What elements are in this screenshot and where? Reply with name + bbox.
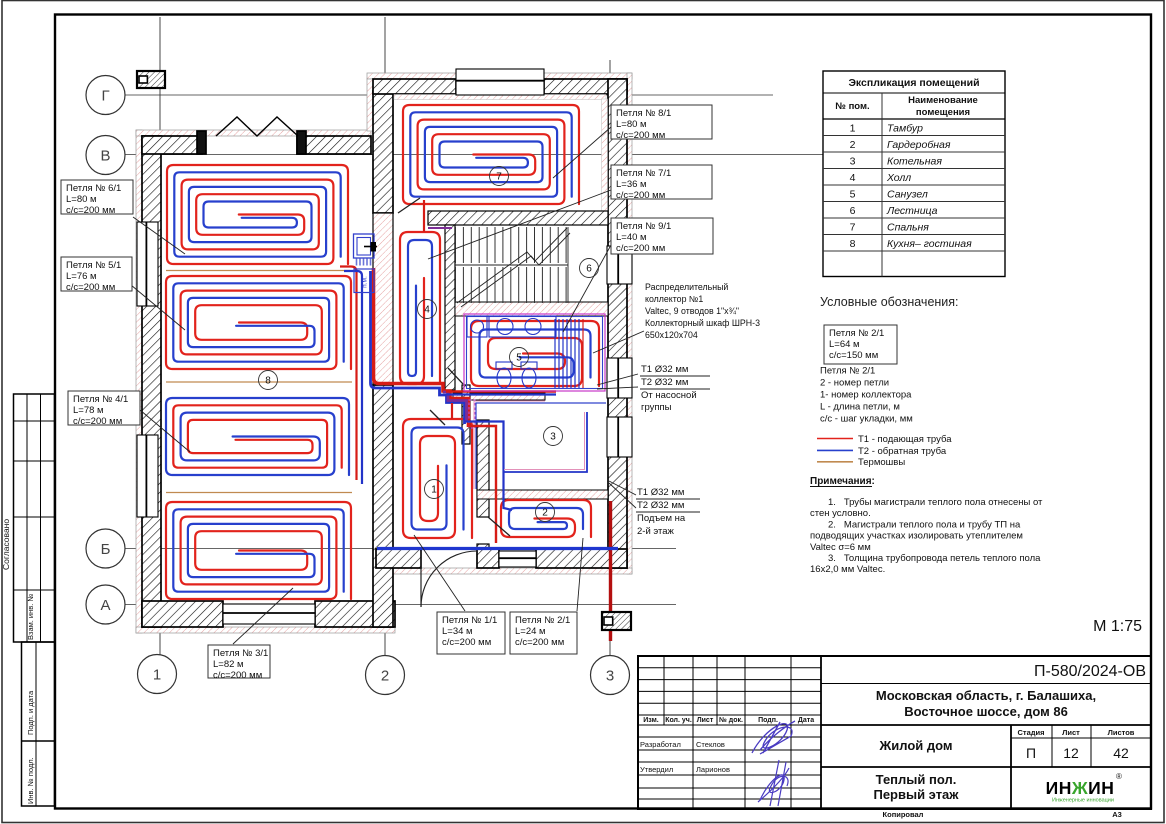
svg-text:с/с=200 мм: с/с=200 мм xyxy=(616,190,665,201)
svg-text:Восточное шоссе, дом 86: Восточное шоссе, дом 86 xyxy=(904,704,1068,719)
svg-text:2 - номер петли: 2 - номер петли xyxy=(820,378,889,389)
svg-text:с/с=200 мм: с/с=200 мм xyxy=(73,416,122,427)
svg-text:L=80 м: L=80 м xyxy=(66,194,97,205)
svg-text:Т1 Ø32 мм: Т1 Ø32 мм xyxy=(637,487,684,498)
svg-text:5: 5 xyxy=(850,189,856,201)
svg-text:Котельная: Котельная xyxy=(887,156,942,168)
svg-text:П-580/2024-ОВ: П-580/2024-ОВ xyxy=(1034,663,1146,680)
svg-text:с/с - шаг укладки, мм: с/с - шаг укладки, мм xyxy=(820,414,913,425)
svg-text:3: 3 xyxy=(606,667,614,684)
svg-text:Инженерные инновации: Инженерные инновации xyxy=(1052,798,1114,804)
svg-text:№ док.: № док. xyxy=(719,716,743,724)
svg-text:помещения: помещения xyxy=(916,107,970,118)
svg-text:Санузел: Санузел xyxy=(887,189,928,201)
svg-text:L=76 м: L=76 м xyxy=(66,271,97,282)
svg-text:с/с=200 мм: с/с=200 мм xyxy=(515,637,564,648)
svg-text:с/с=200 мм: с/с=200 мм xyxy=(213,670,262,681)
svg-text:группы: группы xyxy=(641,402,672,413)
svg-text:Петля № 9/1: Петля № 9/1 xyxy=(616,221,671,232)
svg-text:подводящих участках изолироват: подводящих участках изолировать утеплите… xyxy=(810,531,1023,542)
svg-text:Взам. инв. №: Взам. инв. № xyxy=(26,594,35,640)
svg-text:с/с=200 мм: с/с=200 мм xyxy=(442,637,491,648)
svg-text:1. Трубы магистрали теплого: 1. Трубы магистрали теплого пола отнесен… xyxy=(828,497,1043,508)
svg-text:Экспликация помещений: Экспликация помещений xyxy=(848,77,979,89)
svg-text:3. Толщина трубопровода пете: 3. Толщина трубопровода петель теплого п… xyxy=(828,553,1041,564)
svg-text:с/с=150 мм: с/с=150 мм xyxy=(829,350,878,361)
svg-text:Спальня: Спальня xyxy=(887,222,929,234)
svg-text:Петля № 2/1: Петля № 2/1 xyxy=(829,328,884,339)
svg-text:Т1 - подающая труба: Т1 - подающая труба xyxy=(858,434,952,445)
svg-text:Кол. уч.: Кол. уч. xyxy=(665,717,692,724)
svg-text:Листов: Листов xyxy=(1108,728,1135,737)
svg-text:Ларионов: Ларионов xyxy=(696,765,730,774)
svg-text:В: В xyxy=(100,147,110,164)
svg-text:Подъем на: Подъем на xyxy=(637,513,686,524)
svg-text:Теплый пол.: Теплый пол. xyxy=(876,772,957,787)
svg-text:От насосной: От насосной xyxy=(641,390,697,401)
svg-text:Термошвы: Термошвы xyxy=(858,457,905,468)
svg-text:Распределительный: Распределительный xyxy=(645,282,728,292)
svg-text:Кухня– гостиная: Кухня– гостиная xyxy=(887,238,972,250)
svg-text:1: 1 xyxy=(431,485,437,496)
svg-text:Подп. и дата: Подп. и дата xyxy=(26,690,35,735)
svg-text:Петля № 8/1: Петля № 8/1 xyxy=(616,108,671,119)
svg-text:Московская область, г. Балаших: Московская область, г. Балашиха, xyxy=(876,688,1096,703)
svg-text:Тамбур: Тамбур xyxy=(887,123,923,135)
svg-text:коллектор №1: коллектор №1 xyxy=(645,294,703,304)
svg-text:Петля № 3/1: Петля № 3/1 xyxy=(213,648,268,659)
svg-text:Примечания:: Примечания: xyxy=(810,476,875,487)
svg-text:Петля № 1/1: Петля № 1/1 xyxy=(442,615,497,626)
svg-text:Изм.: Изм. xyxy=(643,717,659,724)
svg-text:3: 3 xyxy=(850,156,856,168)
svg-text:4: 4 xyxy=(424,305,430,316)
svg-text:А3: А3 xyxy=(1112,810,1122,819)
svg-text:L=80 м: L=80 м xyxy=(616,119,647,130)
svg-text:Дата: Дата xyxy=(798,717,814,724)
svg-text:п.м.: п.м. xyxy=(362,276,369,288)
svg-text:Valtec, 9 отводов 1"х¾": Valtec, 9 отводов 1"х¾" xyxy=(645,306,739,316)
svg-text:4: 4 xyxy=(850,172,856,184)
svg-text:3: 3 xyxy=(550,432,556,443)
svg-text:Петля № 2/1: Петля № 2/1 xyxy=(820,366,875,377)
svg-text:2. Магистрали теплого пола и: 2. Магистрали теплого пола и трубу ТП на xyxy=(828,519,1021,530)
svg-text:№ пом.: № пом. xyxy=(835,101,869,112)
svg-text:Лист: Лист xyxy=(1062,728,1080,737)
svg-text:Петля № 7/1: Петля № 7/1 xyxy=(616,168,671,179)
svg-text:с/с=200 мм: с/с=200 мм xyxy=(616,243,665,254)
svg-text:8: 8 xyxy=(850,238,856,250)
svg-text:Петля № 5/1: Петля № 5/1 xyxy=(66,260,121,271)
svg-text:Наименование: Наименование xyxy=(908,95,978,106)
svg-text:Valtec σ=6 мм: Valtec σ=6 мм xyxy=(810,542,871,553)
svg-text:Гардеробная: Гардеробная xyxy=(887,139,951,151)
svg-text:6: 6 xyxy=(850,205,856,217)
svg-text:П: П xyxy=(1026,745,1036,761)
svg-text:L=82 м: L=82 м xyxy=(213,659,244,670)
svg-text:Разработал: Разработал xyxy=(640,740,681,749)
svg-text:Коллекторный шкаф ШРН-3: Коллекторный шкаф ШРН-3 xyxy=(645,318,760,328)
svg-text:1: 1 xyxy=(153,666,161,683)
svg-text:1: 1 xyxy=(850,123,856,135)
svg-text:Б: Б xyxy=(101,541,111,558)
svg-text:Первый этаж: Первый этаж xyxy=(873,787,959,802)
svg-text:Г: Г xyxy=(101,87,109,104)
svg-text:2: 2 xyxy=(850,139,856,151)
svg-text:Стеклов: Стеклов xyxy=(696,740,725,749)
svg-text:L=34 м: L=34 м xyxy=(442,626,473,637)
svg-text:Инв. № подл.: Инв. № подл. xyxy=(26,757,35,804)
svg-text:L=40 м: L=40 м xyxy=(616,232,647,243)
svg-text:1- номер коллектора: 1- номер коллектора xyxy=(820,390,912,401)
svg-text:Стадия: Стадия xyxy=(1017,728,1044,737)
svg-text:Т2 Ø32 мм: Т2 Ø32 мм xyxy=(637,500,684,511)
svg-text:Т2 - обратная труба: Т2 - обратная труба xyxy=(858,446,947,457)
svg-text:стен условно.: стен условно. xyxy=(810,508,871,519)
svg-text:Петля № 6/1: Петля № 6/1 xyxy=(66,183,121,194)
svg-text:Условные обозначения:: Условные обозначения: xyxy=(820,295,959,309)
svg-text:16х2,0 мм Valtec.: 16х2,0 мм Valtec. xyxy=(810,564,885,575)
svg-text:12: 12 xyxy=(1063,745,1079,761)
svg-text:Подп.: Подп. xyxy=(758,717,778,724)
svg-text:Лист: Лист xyxy=(697,717,714,724)
svg-text:Петля № 2/1: Петля № 2/1 xyxy=(515,615,570,626)
svg-text:L=64 м: L=64 м xyxy=(829,339,860,350)
svg-text:c/c=200 мм: c/c=200 мм xyxy=(616,130,665,141)
svg-text:Утвердил: Утвердил xyxy=(640,765,673,774)
svg-text:Холл: Холл xyxy=(886,172,911,184)
svg-text:2-й этаж: 2-й этаж xyxy=(637,526,675,537)
svg-text:М 1:75: М 1:75 xyxy=(1093,618,1142,635)
svg-text:L=78 м: L=78 м xyxy=(73,405,104,416)
svg-text:А: А xyxy=(100,597,110,614)
svg-text:650х120х704: 650х120х704 xyxy=(645,330,698,340)
svg-text:Лестница: Лестница xyxy=(886,205,938,217)
svg-text:2: 2 xyxy=(542,508,548,519)
svg-text:L - длина петли, м: L - длина петли, м xyxy=(820,402,900,413)
svg-text:L=36 м: L=36 м xyxy=(616,179,647,190)
svg-text:42: 42 xyxy=(1113,745,1129,761)
svg-text:8: 8 xyxy=(265,376,271,387)
svg-text:7: 7 xyxy=(850,222,856,234)
svg-text:L=24 м: L=24 м xyxy=(515,626,546,637)
svg-text:2: 2 xyxy=(381,667,389,684)
svg-text:ИНЖИН: ИНЖИН xyxy=(1046,778,1115,798)
svg-text:®: ® xyxy=(1116,772,1122,781)
svg-text:7: 7 xyxy=(496,172,502,183)
svg-text:с/с=200 мм: с/с=200 мм xyxy=(66,205,115,216)
svg-text:Согласовано: Согласовано xyxy=(1,519,11,570)
svg-text:5: 5 xyxy=(516,353,522,364)
svg-text:Петля № 4/1: Петля № 4/1 xyxy=(73,394,128,405)
svg-text:Т1 Ø32 мм: Т1 Ø32 мм xyxy=(641,364,688,375)
svg-text:Т2 Ø32 мм: Т2 Ø32 мм xyxy=(641,377,688,388)
svg-text:Жилой дом: Жилой дом xyxy=(878,738,952,753)
svg-text:Копировал: Копировал xyxy=(883,810,924,819)
svg-text:с/с=200 мм: с/с=200 мм xyxy=(66,282,115,293)
svg-text:6: 6 xyxy=(586,264,592,275)
